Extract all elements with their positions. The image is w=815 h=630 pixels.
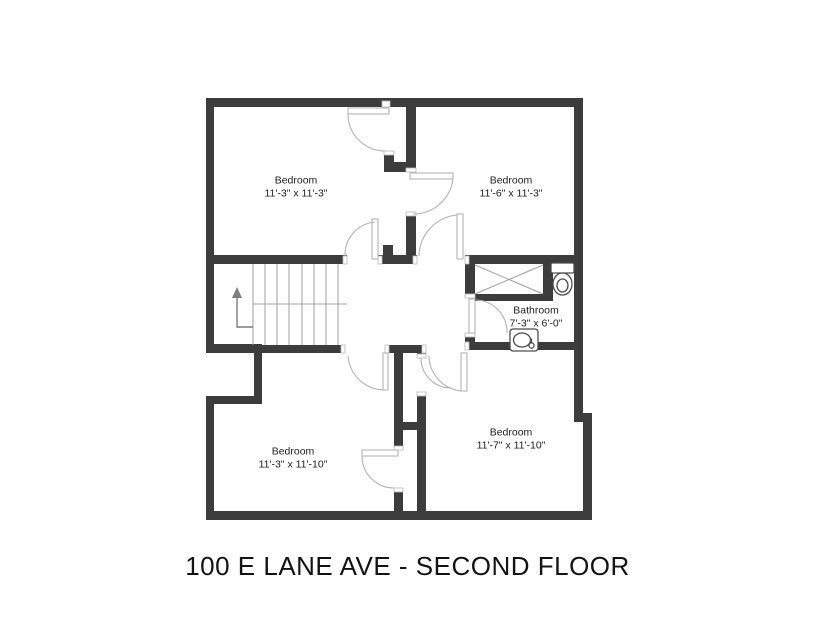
wall-top-bedrooms-divider bbox=[406, 107, 416, 162]
door-leaf-bedroom-top-left bbox=[348, 108, 389, 114]
room-label-bedroom-bottom-right: Bedroom 11'-7" x 11'-10" bbox=[477, 427, 546, 452]
door-arc-stairs bbox=[345, 222, 375, 256]
door-jamb bbox=[406, 168, 416, 172]
floorplan-drawing bbox=[0, 0, 815, 630]
room-dimensions: 11'-7" x 11'-10" bbox=[477, 439, 546, 452]
sink-basin-icon bbox=[514, 333, 531, 347]
room-dimensions: 11'-3" x 11'-3" bbox=[264, 187, 327, 200]
stairs-up-arrow-line bbox=[237, 295, 253, 327]
door-jamb bbox=[422, 345, 426, 353]
room-name: Bedroom bbox=[477, 427, 546, 440]
door-jamb bbox=[385, 345, 389, 353]
room-label-bedroom-bottom-left: Bedroom 11'-3" x 11'-10" bbox=[259, 446, 328, 471]
room-dimensions: 7'-3" x 6'-0" bbox=[510, 317, 563, 330]
room-dimensions: 11'-6" x 11'-3" bbox=[479, 187, 542, 200]
door-arc-bedroom-bottom-left bbox=[348, 356, 383, 390]
door-arc-bathroom bbox=[476, 300, 507, 333]
room-label-bathroom: Bathroom 7'-3" x 6'-0" bbox=[510, 305, 563, 330]
door-arc-bedroom-top-right bbox=[413, 179, 453, 214]
door-jamb bbox=[413, 256, 417, 264]
door-jamb bbox=[417, 354, 426, 358]
wall-closet-east bbox=[543, 255, 553, 301]
wall-bottom-divider-right bbox=[417, 392, 426, 511]
wall-exterior-top bbox=[206, 98, 583, 107]
room-name: Bedroom bbox=[259, 446, 328, 459]
door-jamb bbox=[343, 256, 347, 264]
wall-stair-south bbox=[206, 345, 345, 353]
door-leaf-stairs bbox=[372, 219, 378, 259]
door-jamb bbox=[394, 446, 403, 450]
toilet-tank-icon bbox=[551, 263, 574, 273]
door-arc-bedroom-top-left bbox=[348, 114, 385, 151]
wall-stub-above-cap bbox=[383, 245, 393, 255]
door-leaf-bedroom-top-right bbox=[410, 173, 453, 179]
room-name: Bedroom bbox=[479, 175, 542, 188]
page-title: 100 E LANE AVE - SECOND FLOOR bbox=[0, 551, 815, 582]
door-leaf-bedroom-bottom-left bbox=[383, 353, 388, 390]
wall-exterior-bottom bbox=[206, 511, 592, 520]
wall-exterior-right-upper bbox=[574, 98, 583, 422]
room-dimensions: 11'-3" x 11'-10" bbox=[259, 458, 328, 471]
room-name: Bedroom bbox=[264, 175, 327, 188]
wall-bottom-divider-upper bbox=[394, 353, 403, 450]
wall-exterior-left-lower bbox=[206, 396, 214, 520]
door-jamb bbox=[382, 101, 390, 107]
door-jamb bbox=[384, 151, 394, 155]
toilet-bowl-inner-icon bbox=[557, 279, 568, 292]
wall-stair-north bbox=[206, 255, 347, 264]
wall-exterior-right-lower bbox=[583, 413, 592, 520]
door-leaf-bedroom-bottom-right bbox=[461, 353, 467, 391]
door-arc-bedroom-top-right-south bbox=[419, 215, 457, 256]
floorplan-canvas: Bedroom 11'-3" x 11'-3" Bedroom 11'-6" x… bbox=[0, 0, 815, 630]
wall-notch-bottom bbox=[206, 396, 262, 404]
door-jamb bbox=[341, 345, 345, 353]
door-jamb bbox=[465, 333, 475, 337]
door-jamb bbox=[394, 488, 403, 492]
door-leaf-bathroom bbox=[469, 299, 475, 333]
door-arc-chase bbox=[421, 358, 451, 388]
door-jamb bbox=[465, 342, 469, 350]
wall-hall-cap bbox=[378, 255, 417, 264]
wall-closet-south bbox=[475, 294, 543, 301]
door-arc-closet-bottom-left bbox=[362, 456, 394, 488]
door-leaf-bedroom-top-right-south bbox=[457, 214, 463, 259]
room-name: Bathroom bbox=[510, 305, 563, 318]
door-jamb bbox=[378, 256, 382, 264]
wall-chase-bridge bbox=[394, 422, 426, 430]
door-jamb bbox=[465, 256, 469, 264]
room-label-bedroom-top-right: Bedroom 11'-6" x 11'-3" bbox=[479, 175, 542, 200]
door-jamb bbox=[417, 392, 426, 396]
door-jamb bbox=[465, 294, 475, 298]
wall-tr-west-lower bbox=[406, 212, 416, 257]
door-leaf-closet-bottom-left bbox=[362, 450, 398, 456]
room-label-bedroom-top-left: Bedroom 11'-3" x 11'-3" bbox=[264, 175, 327, 200]
sink-faucet-icon bbox=[529, 343, 534, 348]
door-arc-bedroom-bottom-right bbox=[429, 356, 461, 391]
stairs-up-arrow-head bbox=[232, 287, 242, 298]
wall-exterior-left-upper bbox=[206, 98, 214, 352]
